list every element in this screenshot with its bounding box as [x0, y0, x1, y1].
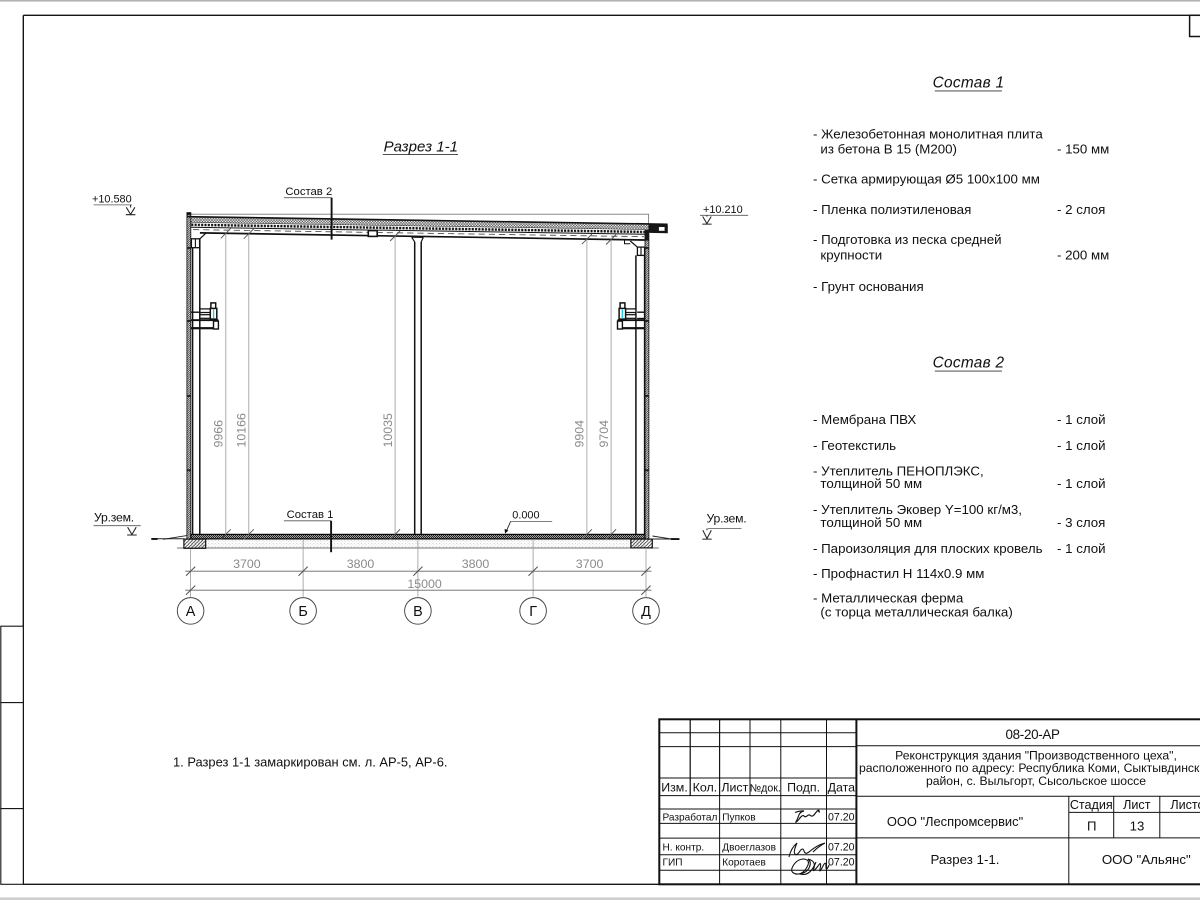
svg-text:Ур.зем.: Ур.зем. — [94, 511, 134, 525]
svg-text:- Геотекстиль: - Геотекстиль — [813, 438, 896, 453]
svg-text:Разработал: Разработал — [663, 811, 718, 823]
svg-text:Двоеглазов: Двоеглазов — [722, 843, 776, 854]
svg-text:- 3 слоя: - 3 слоя — [1057, 515, 1105, 530]
svg-text:- 150 мм: - 150 мм — [1057, 142, 1109, 157]
svg-text:Д: Д — [641, 604, 651, 620]
svg-text:Разрез 1-1: Разрез 1-1 — [384, 138, 458, 155]
svg-text:- Подготовка из песка средней: - Подготовка из песка средней — [813, 232, 1002, 247]
svg-text:из бетона В 15 (М200): из бетона В 15 (М200) — [813, 142, 957, 157]
svg-text:толщиной 50 мм: толщиной 50 мм — [813, 476, 922, 491]
svg-text:- 1 слой: - 1 слой — [1057, 438, 1106, 453]
svg-text:толщиной 50 мм: толщиной 50 мм — [813, 515, 922, 530]
svg-text:А: А — [186, 604, 196, 620]
svg-text:+10.580: +10.580 — [92, 194, 132, 206]
svg-text:район, с. Выльгорт, Сысольское: район, с. Выльгорт, Сысольское шоссе — [926, 774, 1146, 788]
svg-text:10035: 10035 — [381, 413, 395, 448]
svg-text:В: В — [413, 604, 423, 620]
svg-text:07.20: 07.20 — [828, 811, 855, 823]
svg-text:Лист: Лист — [1123, 798, 1151, 812]
svg-text:- Мембрана ПВХ: - Мембрана ПВХ — [813, 412, 916, 427]
svg-text:Состав 1: Состав 1 — [287, 509, 334, 521]
svg-text:- Железобетонная монолитная п: - Железобетонная монолитная плита — [813, 126, 1043, 141]
svg-text:3800: 3800 — [462, 557, 490, 571]
svg-text:Изм.: Изм. — [661, 781, 688, 795]
svg-text:3700: 3700 — [233, 557, 261, 571]
svg-text:ООО "Леспромсервис": ООО "Леспромсервис" — [887, 814, 1024, 829]
svg-text:3800: 3800 — [347, 557, 375, 571]
svg-text:- Сетка армирующая Ø5 100х100: - Сетка армирующая Ø5 100х100 мм — [813, 171, 1040, 186]
svg-text:- Пароизоляция для плоских кро: - Пароизоляция для плоских кровель — [813, 541, 1043, 556]
svg-text:07.20: 07.20 — [828, 842, 855, 854]
svg-text:Лист: Лист — [721, 781, 748, 795]
svg-text:- Пленка полиэтиленовая: - Пленка полиэтиленовая — [813, 202, 971, 217]
svg-text:9704: 9704 — [597, 420, 611, 448]
svg-text:Состав 1: Состав 1 — [933, 75, 1005, 92]
svg-text:Ур.зем.: Ур.зем. — [707, 512, 747, 526]
svg-text:Стадия: Стадия — [1070, 798, 1113, 812]
svg-text:П: П — [1087, 819, 1096, 834]
svg-text:- 200 мм: - 200 мм — [1057, 247, 1109, 262]
svg-text:+10.210: +10.210 — [703, 204, 743, 216]
svg-text:15000: 15000 — [407, 577, 442, 591]
svg-text:Г: Г — [529, 604, 537, 620]
svg-text:- 2 слоя: - 2 слоя — [1057, 202, 1105, 217]
svg-text:9904: 9904 — [573, 420, 587, 448]
svg-text:Кол.: Кол. — [693, 781, 718, 795]
svg-text:Б: Б — [298, 604, 307, 620]
svg-text:ГИП: ГИП — [663, 857, 683, 868]
svg-text:3700: 3700 — [576, 557, 604, 571]
svg-text:- Профнастил Н 114х0.9 мм: - Профнастил Н 114х0.9 мм — [813, 566, 984, 581]
svg-text:Н. контр.: Н. контр. — [663, 843, 705, 854]
svg-text:Пупков: Пупков — [722, 812, 755, 823]
svg-text:- 1 слой: - 1 слой — [1057, 541, 1106, 556]
svg-text:- Грунт основания: - Грунт основания — [813, 279, 924, 294]
svg-text:07.20: 07.20 — [828, 856, 855, 868]
svg-text:- 1 слой: - 1 слой — [1057, 476, 1106, 491]
svg-text:Коротаев: Коротаев — [722, 857, 766, 868]
svg-text:08-20-АР: 08-20-АР — [1006, 727, 1061, 742]
svg-text:0.000: 0.000 — [512, 509, 539, 521]
svg-text:Подп.: Подп. — [787, 781, 820, 795]
svg-text:9966: 9966 — [212, 420, 226, 448]
svg-text:- 1 слой: - 1 слой — [1057, 412, 1106, 427]
svg-text:Состав 2: Состав 2 — [933, 355, 1005, 372]
svg-text:13: 13 — [1130, 819, 1145, 834]
svg-text:крупности: крупности — [813, 247, 882, 262]
svg-text:№док.: №док. — [750, 782, 781, 794]
svg-text:10166: 10166 — [235, 413, 249, 448]
svg-text:ООО "Альянс": ООО "Альянс" — [1102, 852, 1191, 867]
svg-text:Разрез 1-1.: Разрез 1-1. — [931, 852, 1000, 867]
svg-text:Состав 2: Состав 2 — [285, 186, 332, 198]
svg-text:(с торца металлическая балка): (с торца металлическая балка) — [813, 604, 1013, 619]
svg-text:Дата: Дата — [828, 781, 856, 795]
svg-text:1. Разрез 1-1 замаркирован см.: 1. Разрез 1-1 замаркирован см. л. АР-5, … — [173, 755, 447, 770]
svg-text:Листов: Листов — [1170, 798, 1200, 812]
